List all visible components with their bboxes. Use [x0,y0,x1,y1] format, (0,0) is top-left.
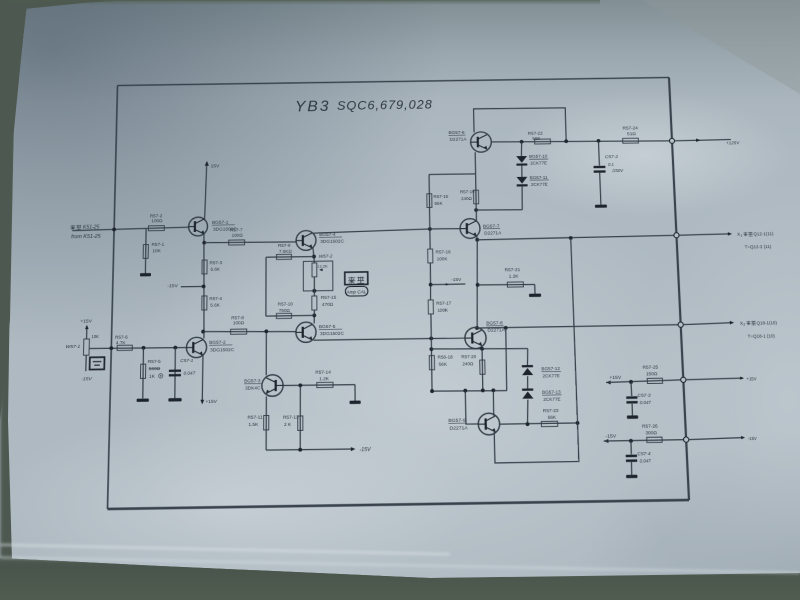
svg-text:2CK77E: 2CK77E [542,373,560,379]
svg-text:C57-1: C57-1 [180,358,194,364]
svg-text:2CK77E: 2CK77E [543,396,561,402]
svg-text:W57-2: W57-2 [319,253,333,258]
svg-text:5.6K: 5.6K [210,266,220,271]
svg-text:+125V: +125V [726,140,741,145]
svg-text:100Ω: 100Ω [151,218,163,223]
svg-text:R57-14: R57-14 [315,369,331,375]
svg-text:Q18-1(10): Q18-1(10) [756,320,777,326]
svg-text:240Ω: 240Ω [462,361,473,367]
svg-text:SQC6,679,028: SQC6,679,028 [337,97,433,112]
svg-text:-15V: -15V [748,435,758,441]
svg-text:BG57-6: BG57-6 [448,130,465,135]
svg-text:T=Q18-1 (10): T=Q18-1 (10) [747,333,775,339]
svg-text:100K: 100K [437,256,448,261]
svg-text:56K: 56K [548,414,557,420]
svg-text:7.5KΩ: 7.5KΩ [279,248,293,253]
svg-text:R57-15: R57-15 [321,295,337,301]
svg-text:4.7K: 4.7K [116,340,126,345]
svg-text:R57-25: R57-25 [643,364,659,370]
svg-text:56K: 56K [532,136,540,141]
svg-text:W57-1: W57-1 [65,344,80,351]
svg-text:D2271A: D2271A [484,230,502,235]
svg-text:2CK77E: 2CK77E [531,181,548,186]
svg-text:R56-18: R56-18 [438,354,454,360]
svg-text:1.2K: 1.2K [509,273,519,278]
svg-text:BG57-7: BG57-7 [483,223,500,228]
svg-text:R57-1: R57-1 [152,242,165,247]
svg-text:240Ω: 240Ω [461,196,472,201]
svg-text:-15V: -15V [359,446,371,453]
svg-text:R57-17: R57-17 [436,300,452,306]
svg-text:10K: 10K [152,248,160,253]
svg-text:0.047: 0.047 [640,458,652,464]
svg-text:from K51-25: from K51-25 [71,234,101,241]
svg-text:560Ω: 560Ω [149,366,161,372]
svg-text:2 K: 2 K [284,422,291,428]
svg-text:R57-4: R57-4 [209,296,222,301]
svg-text:12.2K: 12.2K [317,264,328,268]
svg-text:D2271A: D2271A [487,327,506,333]
svg-text:1.5K: 1.5K [248,422,258,428]
svg-text:0.1: 0.1 [608,162,614,167]
svg-text:R57-9: R57-9 [278,242,291,247]
svg-text:51Ω: 51Ω [627,131,637,136]
svg-text:150Ω: 150Ω [646,371,658,377]
svg-text:750Ω: 750Ω [279,308,291,313]
svg-text:R57-20: R57-20 [461,354,477,360]
svg-text:100Ω: 100Ω [233,320,245,325]
svg-text:3DG1502C: 3DG1502C [320,238,345,244]
svg-text:R57-23: R57-23 [543,408,559,414]
svg-text:R57-11: R57-11 [247,414,263,420]
svg-text:0.047: 0.047 [640,400,652,406]
svg-text:56K: 56K [439,361,447,366]
svg-text:56K: 56K [434,200,442,205]
svg-text:-15V: -15V [167,283,179,289]
svg-text:BG57-1: BG57-1 [212,219,229,224]
svg-text:R57-15: R57-15 [433,194,449,199]
svg-text:-15V: -15V [605,433,617,440]
svg-text:BG57-10: BG57-10 [529,154,548,159]
svg-text:+15V: +15V [205,399,217,405]
svg-text:BG57-8: BG57-8 [486,320,503,326]
svg-text:R57-26: R57-26 [642,423,658,429]
svg-text:5.6K: 5.6K [210,302,220,307]
svg-text:-15V: -15V [451,277,461,282]
svg-text:470Ω: 470Ω [322,302,334,307]
svg-text:+15V: +15V [746,376,757,382]
svg-text:Amp CAL: Amp CAL [345,289,366,295]
svg-text:C57-4: C57-4 [637,451,651,457]
svg-text:R57-21: R57-21 [505,267,521,272]
svg-text:BG57-3: BG57-3 [244,378,261,384]
svg-text:15V: 15V [211,163,221,169]
svg-text:/250V: /250V [611,168,623,173]
svg-text:3DK4C: 3DK4C [245,385,261,391]
svg-text:100K: 100K [437,307,448,312]
svg-text:100Ω: 100Ω [232,232,244,237]
svg-text:BG57-11: BG57-11 [530,175,549,180]
svg-text:2CK77E: 2CK77E [530,160,547,165]
svg-text:-15V: -15V [81,376,93,383]
svg-text:BG57-2: BG57-2 [209,339,226,345]
svg-text:D2271A: D2271A [449,425,468,432]
svg-text:C57-2: C57-2 [605,154,619,159]
svg-text:C57-3: C57-3 [637,392,651,398]
svg-text:BG57-12: BG57-12 [541,366,560,372]
svg-text:BG57-13: BG57-13 [542,389,561,395]
svg-text:3DG1502C: 3DG1502C [210,347,235,353]
svg-text:1: 1 [740,234,742,238]
svg-text:R57-10: R57-10 [278,301,294,307]
svg-text:Q12-1(11): Q12-1(11) [753,231,774,236]
svg-text:BG57-5: BG57-5 [319,324,336,330]
svg-text:10K: 10K [91,334,99,339]
svg-text:300Ω: 300Ω [645,430,657,436]
svg-text:T=Q12-2 (11): T=Q12-2 (11) [745,244,772,250]
svg-text:1.2K: 1.2K [319,376,329,382]
svg-text:R57-3: R57-3 [210,260,223,265]
svg-text:1K: 1K [149,373,155,378]
svg-text:YB3: YB3 [295,98,330,116]
svg-text:0.047: 0.047 [183,370,195,376]
svg-text:2: 2 [743,323,745,327]
svg-text:R57-19: R57-19 [460,189,475,194]
svg-text:R57-13: R57-13 [283,414,299,420]
svg-text:+15V: +15V [80,318,93,323]
svg-text:R57-5: R57-5 [148,359,162,365]
svg-text:+15V: +15V [609,374,622,381]
svg-text:3DG1502C: 3DG1502C [320,331,345,337]
svg-text:D2271A: D2271A [450,136,468,141]
svg-text:R57-16: R57-16 [436,249,452,254]
svg-text:R57-24: R57-24 [622,125,638,130]
